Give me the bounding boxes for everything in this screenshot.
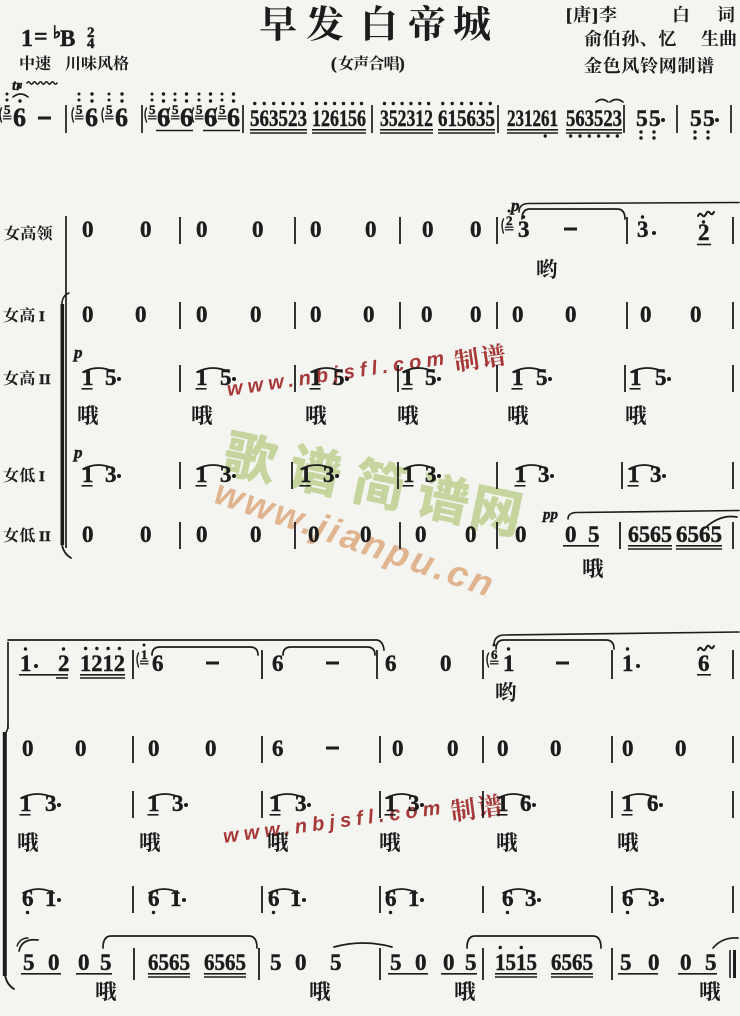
svg-text:0: 0 xyxy=(250,302,262,327)
svg-text:0: 0 xyxy=(360,522,372,547)
svg-text:231261: 231261 xyxy=(507,106,558,132)
svg-text:): ) xyxy=(399,54,405,73)
svg-text:0: 0 xyxy=(252,217,264,242)
svg-text:(: ( xyxy=(331,54,337,73)
svg-text:5: 5 xyxy=(219,102,226,117)
svg-text:5: 5 xyxy=(76,102,83,117)
svg-text:5: 5 xyxy=(636,106,648,132)
svg-text:1: 1 xyxy=(141,647,148,662)
svg-text:5: 5 xyxy=(705,950,717,975)
svg-text:6: 6 xyxy=(272,651,284,676)
svg-text:1: 1 xyxy=(20,651,32,676)
svg-text:p: p xyxy=(509,196,520,215)
svg-text:0: 0 xyxy=(440,651,452,676)
svg-text:]: ] xyxy=(592,5,598,25)
svg-text:II: II xyxy=(39,372,51,388)
svg-text:5: 5 xyxy=(649,106,661,132)
svg-text:0: 0 xyxy=(310,217,322,242)
svg-text:0: 0 xyxy=(550,736,562,761)
svg-text:0: 0 xyxy=(565,302,577,327)
svg-text:p: p xyxy=(72,443,83,462)
svg-text:6565: 6565 xyxy=(676,522,722,547)
svg-text:5: 5 xyxy=(588,522,600,547)
svg-text:0: 0 xyxy=(310,302,322,327)
svg-text:563523: 563523 xyxy=(250,106,307,132)
svg-text:1: 1 xyxy=(21,26,33,52)
svg-text:0: 0 xyxy=(622,736,634,761)
svg-text:0: 0 xyxy=(82,217,94,242)
svg-text:352312: 352312 xyxy=(380,106,433,132)
svg-text:0: 0 xyxy=(422,217,434,242)
svg-text:5: 5 xyxy=(690,106,702,132)
svg-text:5: 5 xyxy=(270,950,282,975)
svg-text:6565: 6565 xyxy=(551,950,593,975)
svg-text:0: 0 xyxy=(365,217,377,242)
svg-text:5: 5 xyxy=(172,102,179,117)
svg-text:0: 0 xyxy=(205,736,217,761)
svg-text:0: 0 xyxy=(497,736,509,761)
svg-text:0: 0 xyxy=(196,217,208,242)
svg-text:2: 2 xyxy=(698,220,710,245)
svg-text:0: 0 xyxy=(565,522,577,547)
svg-text:0: 0 xyxy=(250,522,262,547)
svg-text:6: 6 xyxy=(115,103,128,132)
svg-text:0: 0 xyxy=(470,302,482,327)
svg-text:6: 6 xyxy=(152,651,164,676)
svg-text:0: 0 xyxy=(690,302,702,327)
svg-text:6: 6 xyxy=(85,103,98,132)
svg-text:5: 5 xyxy=(703,106,715,132)
svg-text:6565: 6565 xyxy=(148,950,190,975)
svg-text:3: 3 xyxy=(518,217,530,242)
svg-text:0: 0 xyxy=(48,950,60,975)
svg-text:0: 0 xyxy=(465,522,477,547)
svg-text:2: 2 xyxy=(58,651,70,676)
svg-text:615635: 615635 xyxy=(438,106,495,132)
svg-text:4: 4 xyxy=(87,36,95,52)
svg-text:0: 0 xyxy=(443,950,455,975)
svg-text:0: 0 xyxy=(82,522,94,547)
svg-text:0: 0 xyxy=(447,736,459,761)
svg-text:0: 0 xyxy=(415,522,427,547)
svg-text:6: 6 xyxy=(180,103,193,132)
svg-text:[: [ xyxy=(566,5,572,25)
svg-text:0: 0 xyxy=(363,302,375,327)
svg-text:0: 0 xyxy=(470,217,482,242)
svg-text:0: 0 xyxy=(78,950,90,975)
svg-text:126156: 126156 xyxy=(312,106,366,132)
svg-text:5: 5 xyxy=(196,102,203,117)
svg-text:6565: 6565 xyxy=(628,522,672,547)
svg-text:0: 0 xyxy=(640,302,652,327)
svg-text:0: 0 xyxy=(135,302,147,327)
svg-text:pp: pp xyxy=(541,507,559,523)
svg-text:5: 5 xyxy=(390,950,402,975)
svg-text:2: 2 xyxy=(506,213,513,228)
svg-text:0: 0 xyxy=(196,522,208,547)
svg-text:6: 6 xyxy=(491,647,498,662)
svg-text:6: 6 xyxy=(385,651,397,676)
svg-text:I: I xyxy=(39,469,45,485)
svg-text:1: 1 xyxy=(622,651,634,676)
svg-text:1212: 1212 xyxy=(80,651,125,676)
svg-text:0: 0 xyxy=(22,736,34,761)
svg-text:0: 0 xyxy=(512,302,524,327)
svg-text:0: 0 xyxy=(392,736,404,761)
svg-text:0: 0 xyxy=(680,950,692,975)
svg-text:I: I xyxy=(39,309,45,325)
svg-text:5: 5 xyxy=(465,950,477,975)
svg-text:p: p xyxy=(72,343,83,362)
svg-text:0: 0 xyxy=(308,522,320,547)
svg-text:6: 6 xyxy=(13,103,26,132)
svg-text:5: 5 xyxy=(620,950,632,975)
svg-text:0: 0 xyxy=(82,302,94,327)
svg-text:5: 5 xyxy=(100,950,112,975)
svg-text:5: 5 xyxy=(330,950,342,975)
svg-text:1: 1 xyxy=(503,651,515,676)
svg-text:0: 0 xyxy=(515,522,527,547)
svg-text:3: 3 xyxy=(637,217,649,242)
svg-text:0: 0 xyxy=(75,736,87,761)
svg-text:5: 5 xyxy=(149,102,156,117)
svg-text:0: 0 xyxy=(140,522,152,547)
svg-text:0: 0 xyxy=(675,736,687,761)
svg-text:6: 6 xyxy=(272,736,284,761)
svg-text:B: B xyxy=(60,26,75,51)
svg-text:0: 0 xyxy=(421,302,433,327)
svg-text:=: = xyxy=(34,24,48,50)
svg-text:6565: 6565 xyxy=(204,950,246,975)
svg-text:563523: 563523 xyxy=(566,106,622,132)
svg-text:0: 0 xyxy=(140,217,152,242)
svg-text:5: 5 xyxy=(106,102,113,117)
svg-text:II: II xyxy=(39,529,51,545)
svg-text:0: 0 xyxy=(196,302,208,327)
svg-text:0: 0 xyxy=(648,950,660,975)
svg-text:6: 6 xyxy=(227,103,240,132)
svg-text:5: 5 xyxy=(23,950,35,975)
svg-text:0: 0 xyxy=(295,950,307,975)
svg-text:6: 6 xyxy=(698,651,710,676)
svg-text:1515: 1515 xyxy=(495,950,537,975)
svg-text:0: 0 xyxy=(415,950,427,975)
svg-text:0: 0 xyxy=(148,736,160,761)
svg-text:5: 5 xyxy=(4,102,11,117)
